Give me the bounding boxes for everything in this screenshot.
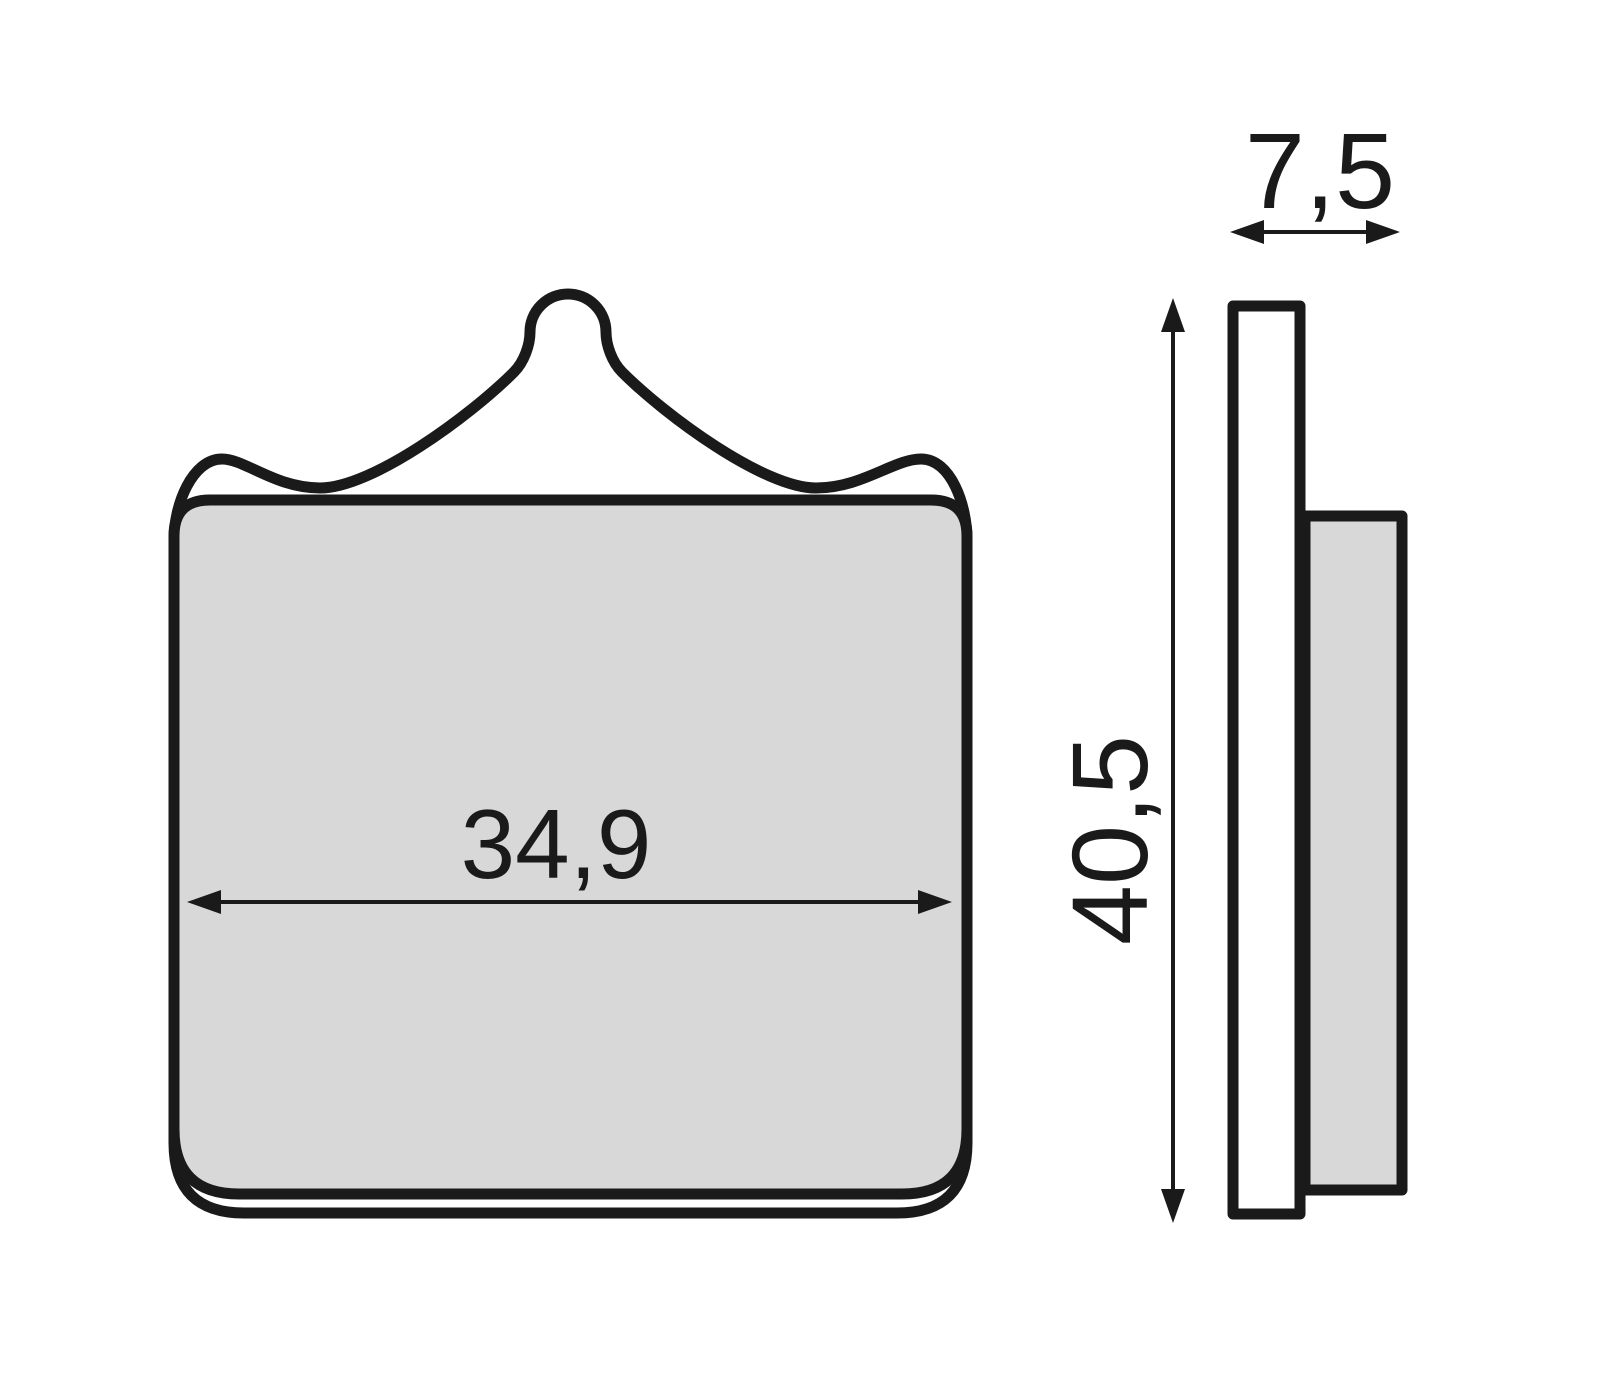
side-thickness-dimension: 7,5 <box>1230 110 1400 244</box>
side-view: 7,5 40,5 <box>1049 110 1402 1223</box>
side-friction-pad <box>1305 516 1402 1190</box>
side-backplate <box>1233 306 1300 1214</box>
side-height-dimension-label: 40,5 <box>1049 735 1170 945</box>
side-thickness-dimension-label: 7,5 <box>1245 110 1395 231</box>
front-width-dimension-label: 34,9 <box>461 789 652 899</box>
front-view: 34,9 <box>174 294 967 1213</box>
brake-pad-technical-drawing: 34,9 7,5 40,5 <box>0 0 1600 1399</box>
side-height-arrowhead-bottom <box>1161 1189 1185 1223</box>
side-height-arrowhead-top <box>1161 298 1185 332</box>
side-height-dimension: 40,5 <box>1049 298 1185 1223</box>
drawing-canvas: 34,9 7,5 40,5 <box>0 0 1600 1399</box>
